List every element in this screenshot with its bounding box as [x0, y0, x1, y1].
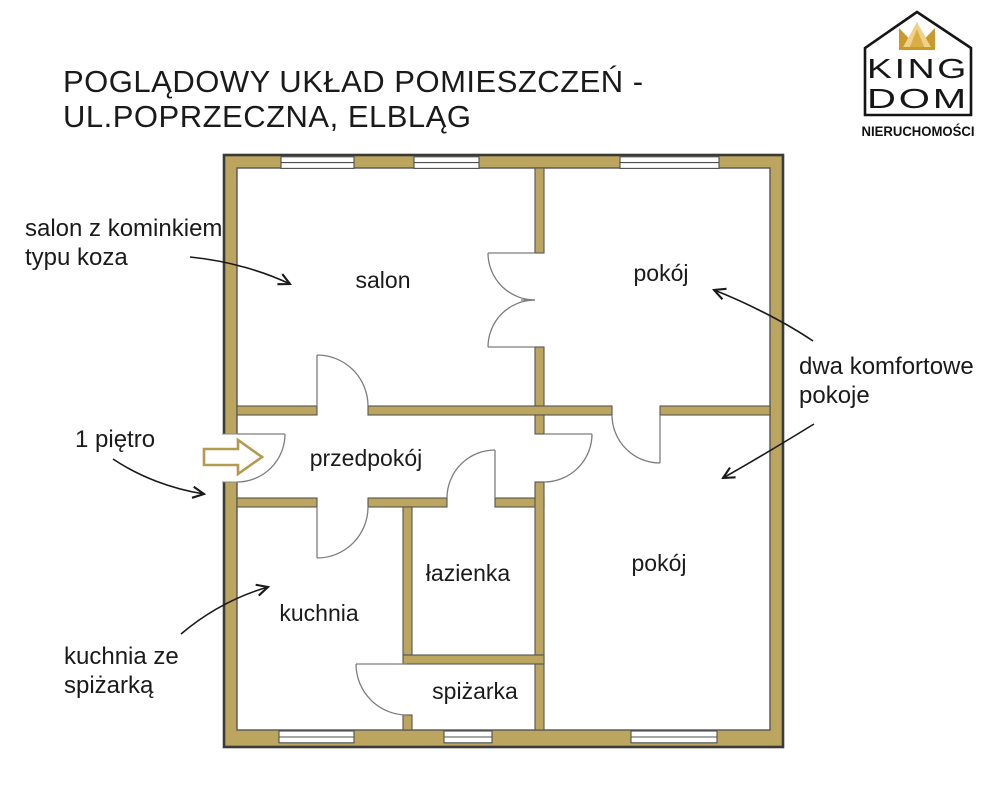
note-fireplace-line1: salon z kominkiem	[25, 215, 222, 242]
window-bottom-pantry	[444, 731, 492, 743]
note-two-rooms-line2: pokoje	[799, 382, 870, 409]
wall-segment	[237, 406, 317, 415]
room-label-kitchen: kuchnia	[279, 600, 358, 626]
arrow-to-entrance	[113, 459, 204, 494]
wall-segment	[403, 655, 544, 664]
note-kitchen-line1: kuchnia ze	[64, 643, 179, 670]
window-bottom-room	[631, 731, 717, 743]
wall-segment	[368, 498, 447, 507]
wall-segment	[237, 498, 317, 507]
room-label-pantry: spiżarka	[432, 678, 518, 704]
room-label-room-bottom: pokój	[632, 550, 687, 576]
room-label-bathroom: łazienka	[426, 560, 511, 586]
logo-word-dom: DOM	[867, 83, 969, 114]
wall-segment	[535, 482, 544, 730]
room-label-room-top: pokój	[634, 260, 689, 286]
wall-segment	[535, 168, 544, 253]
wall-segment	[535, 347, 544, 415]
floor-plan-canvas: POGLĄDOWY UKŁAD POMIESZCZEŃ - UL.POPRZEC…	[0, 0, 982, 800]
brand-logo: KING DOM NIERUCHOMOŚCI	[862, 12, 975, 139]
logo-word-king: KING	[867, 53, 969, 84]
room-label-hallway: przedpokój	[310, 445, 423, 471]
page-title-line2: UL.POPRZECZNA, ELBLĄG	[63, 99, 471, 134]
window-top-salon-2	[414, 157, 479, 169]
wall-segment	[403, 715, 412, 730]
wall-segment	[535, 415, 544, 434]
window-top-room	[620, 157, 719, 169]
note-two-rooms-line1: dwa komfortowe	[799, 353, 974, 380]
wall-segment	[403, 507, 412, 655]
note-floor: 1 piętro	[75, 426, 155, 453]
window-top-salon-1	[281, 157, 354, 169]
wall-segment	[660, 406, 770, 415]
floor-plan: salon pokój przedpokój łazienka kuchnia …	[204, 155, 783, 747]
page-title-line1: POGLĄDOWY UKŁAD POMIESZCZEŃ -	[63, 64, 644, 99]
note-fireplace-line2: typu koza	[25, 244, 128, 271]
room-label-salon: salon	[356, 267, 411, 293]
window-bottom-kitchen	[279, 731, 354, 743]
logo-subtitle: NIERUCHOMOŚCI	[862, 124, 975, 139]
wall-segment	[368, 406, 612, 415]
floor-plan-page: POGLĄDOWY UKŁAD POMIESZCZEŃ - UL.POPRZEC…	[0, 0, 982, 800]
note-kitchen-line2: spiżarką	[64, 672, 154, 699]
